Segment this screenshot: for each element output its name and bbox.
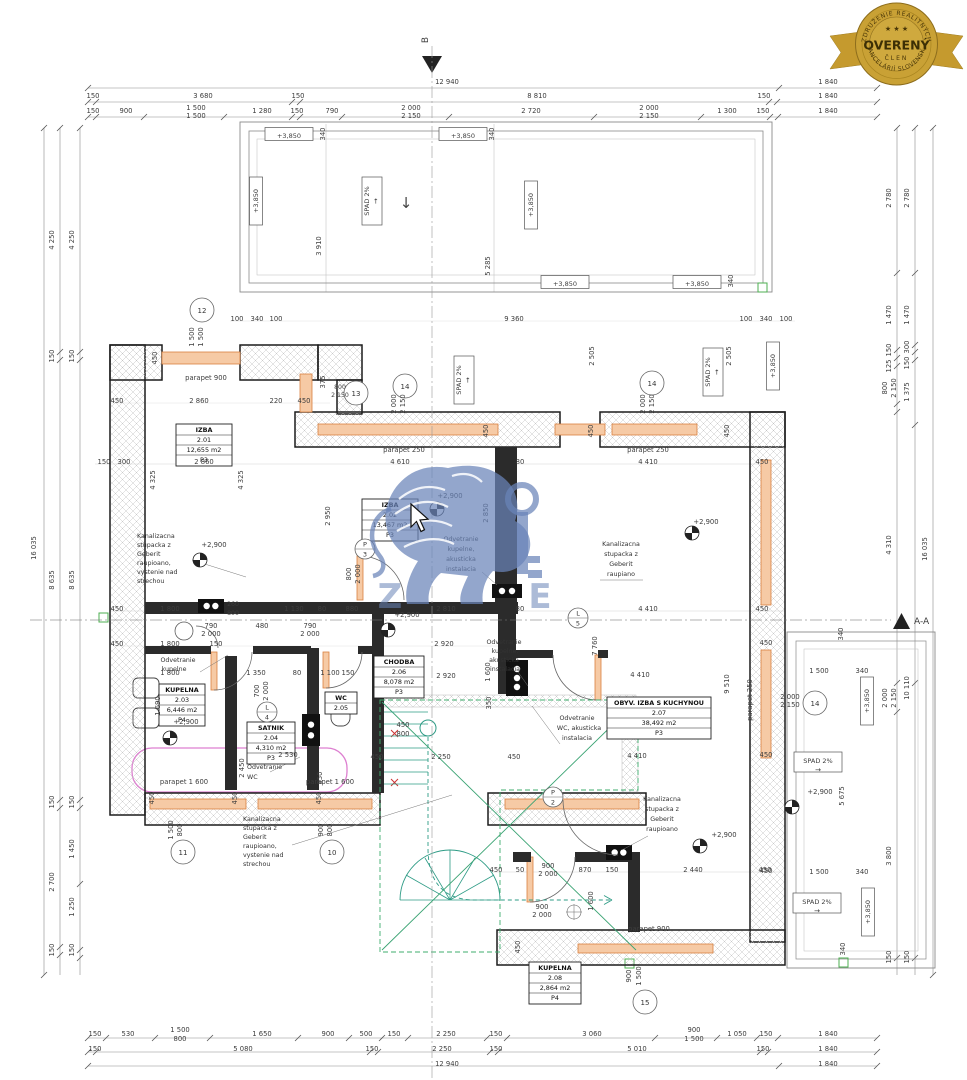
- dim-text: ↓: [400, 194, 413, 212]
- dim-text: 1 840: [818, 1030, 837, 1038]
- room-info: P3: [655, 729, 663, 737]
- dim-text: strechou: [137, 578, 164, 585]
- dim-text: 450: [723, 425, 731, 438]
- window-lintel: [612, 424, 697, 435]
- dim-text: 1 500: [167, 820, 175, 839]
- dim-text: 100: [270, 315, 283, 323]
- dim-text: 1 500: [684, 1035, 703, 1043]
- dim-text: 1 300: [717, 107, 736, 115]
- dim-text: 2 440: [683, 866, 702, 874]
- green-marker: [758, 283, 767, 292]
- dim-text: 4 410: [630, 671, 649, 679]
- watermark-letter: E: [528, 577, 551, 617]
- level-box-label: +3,850: [277, 132, 301, 140]
- dim-text: +2,900: [173, 718, 198, 726]
- dim-text: 80: [516, 458, 525, 466]
- dim-text: 300: [903, 341, 911, 354]
- dim-text: 150: [606, 866, 619, 874]
- dim-text: 4 250: [48, 230, 56, 249]
- dim-text: 2 860: [194, 458, 213, 466]
- dim-text: 1 500: [635, 966, 643, 985]
- dim-text: stupacka z: [604, 551, 638, 558]
- dim-text: 4 325: [237, 470, 245, 489]
- room-info: 2.07: [652, 709, 666, 717]
- dim-text: 2 000: [201, 630, 220, 638]
- window-lintel: [162, 352, 240, 364]
- plumbing-shaft: [492, 584, 522, 598]
- dim-text: 2 530: [278, 751, 297, 759]
- dim-text: 220: [270, 397, 283, 405]
- reference-circle-label: 14: [648, 380, 657, 388]
- dim-text: 150: [366, 1045, 379, 1053]
- partition-wall: [516, 650, 553, 658]
- dim-text: raupioano: [646, 826, 678, 833]
- dim-text: WC, akusticka: [557, 725, 601, 732]
- level-box-label: +3,850: [769, 354, 777, 378]
- badge-stars: ★ ★ ★: [885, 25, 908, 33]
- dim-text: 2 150: [401, 112, 420, 120]
- dim-text: 5 285: [484, 256, 492, 275]
- room-info: 2.08: [548, 974, 562, 982]
- room-info: 2.03: [175, 696, 189, 704]
- dim-text: 340: [856, 667, 869, 675]
- dim-text: 450: [111, 640, 124, 648]
- dim-text: 2 505: [588, 346, 596, 365]
- dim-text: raupioano,: [243, 843, 277, 850]
- dim-text: 2 780: [903, 188, 911, 207]
- dim-text: 150: [903, 951, 911, 964]
- partition-wall: [628, 852, 640, 932]
- room-name: CHODBA: [384, 658, 415, 666]
- dim-text: 3 910: [315, 236, 323, 255]
- dim-text: 450: [760, 751, 773, 759]
- plumbing-shaft: [198, 599, 224, 613]
- slope-arrow: →: [372, 198, 380, 204]
- dim-text: 150: [89, 1030, 102, 1038]
- partition-wall: [253, 646, 311, 654]
- dim-text: 450: [298, 397, 311, 405]
- line: [532, 706, 560, 744]
- shaft-pipe: [308, 721, 314, 727]
- dim-text: stupacka z: [137, 542, 171, 549]
- dim-text: Kanalizacna: [643, 796, 681, 803]
- dim-text: 2 000: [532, 911, 551, 919]
- dim-text: 700: [253, 685, 261, 698]
- room-info: 2,864 m2: [540, 984, 571, 992]
- dim-text: 450: [151, 352, 159, 365]
- dim-text: 12 940: [435, 78, 459, 86]
- dim-text: Geberit: [650, 816, 674, 823]
- dim-text: 800: [176, 824, 184, 837]
- dim-text: 9 510: [723, 674, 731, 693]
- dim-text: 2 000: [300, 630, 319, 638]
- dim-text: Odvetranie: [559, 715, 594, 722]
- dim-text: Odvetranie: [160, 657, 195, 664]
- dim-text: 2 810: [436, 605, 455, 613]
- room-info: 38,492 m2: [642, 719, 677, 727]
- dim-text: 1 500: [186, 112, 205, 120]
- dim-text: 8 635: [48, 570, 56, 589]
- dim-text: 375: [319, 376, 327, 389]
- dim-text: stupacka z: [243, 825, 277, 832]
- dim-text: 10 110: [903, 676, 911, 700]
- dim-text: 2 250: [432, 1045, 451, 1053]
- partition-wall: [358, 646, 372, 654]
- dim-text: 900: [317, 824, 325, 837]
- dim-text: 450: [231, 792, 239, 805]
- dim-text: 2 000: [390, 394, 398, 413]
- dim-text: Geberit: [137, 551, 161, 558]
- slope-arrow: →: [815, 766, 821, 774]
- dim-text: instalacia: [490, 666, 520, 673]
- dim-text: 1 690: [154, 696, 162, 715]
- stair-start: [420, 720, 436, 736]
- reference-circle-label: 14: [401, 383, 410, 391]
- roof-outline: [257, 139, 755, 275]
- dim-text: 340: [727, 275, 735, 288]
- dim-text: 4 250: [68, 230, 76, 249]
- dim-text: 2 150: [648, 394, 656, 413]
- dim-text: 790: [205, 622, 218, 630]
- dim-text: 800: [881, 382, 889, 395]
- shaft-pipe: [308, 732, 314, 738]
- dim-text: 800: [326, 824, 334, 837]
- dim-text: WC: [247, 774, 258, 781]
- room-info: 2.06: [392, 668, 406, 676]
- dim-text: 900: [542, 862, 555, 870]
- dim-text: 530: [122, 1030, 135, 1038]
- dim-text: 450: [759, 866, 772, 874]
- dim-text: Kanalizacna: [137, 533, 175, 540]
- dim-text: Geberit: [609, 561, 633, 568]
- floorplan-canvas: +3,850+3,850+3,850+3,850+3,850+3,850+3,8…: [0, 0, 967, 1080]
- dim-text: 4 410: [627, 752, 646, 760]
- dim-text: 340: [760, 315, 773, 323]
- badge-member: ČLEN: [885, 55, 909, 62]
- level-box-label: +3,850: [553, 280, 577, 288]
- dim-text: 2 950: [324, 506, 332, 525]
- dim-text: 480: [256, 622, 269, 630]
- dim-text: 150: [292, 92, 305, 100]
- dim-text: 4 325: [149, 470, 157, 489]
- plumbing-shaft: [606, 845, 632, 860]
- dim-text: 450: [490, 866, 503, 874]
- room-name: IZBA: [196, 426, 213, 434]
- dim-text: 450: [111, 397, 124, 405]
- room-info: 8,078 m2: [384, 678, 415, 686]
- slope-arrow: →: [713, 369, 721, 375]
- reference-circle-label: 5: [576, 620, 580, 628]
- dim-text: Odvetranie: [486, 639, 521, 646]
- dim-text: 340: [856, 868, 869, 876]
- dim-text: 2 250: [436, 1030, 455, 1038]
- dim-text: 2 860: [189, 397, 208, 405]
- partition-wall: [598, 650, 608, 658]
- dim-text: 4 410: [638, 605, 657, 613]
- dim-text: 5 080: [233, 1045, 252, 1053]
- dim-text: 500: [360, 1030, 373, 1038]
- dim-text: 450: [371, 753, 384, 761]
- stair-treads: [400, 850, 500, 900]
- dim-text: 450: [514, 941, 522, 954]
- dim-text: +2,900: [711, 831, 736, 839]
- dim-text: 2 450: [238, 758, 246, 777]
- dim-text: 2 150: [639, 112, 658, 120]
- dim-text: 1 800: [160, 640, 179, 648]
- dim-text: akusticka: [489, 657, 519, 664]
- window-lintel: [318, 424, 498, 435]
- dim-text: 340: [839, 943, 847, 956]
- dim-text: 450: [397, 721, 410, 729]
- dim-text: 80: [318, 605, 327, 613]
- dim-text: 100: [231, 315, 244, 323]
- dim-text: vystenie nad: [137, 569, 178, 576]
- dim-text: 1 500: [809, 667, 828, 675]
- dim-text: 150: [388, 1030, 401, 1038]
- level-box-label: SPAD 2%: [455, 365, 463, 394]
- dim-text: 340: [251, 315, 264, 323]
- dim-text: 100: [780, 315, 793, 323]
- dim-text: instalacia: [562, 735, 592, 742]
- dim-text: 800: [227, 610, 239, 617]
- window-lintel: [595, 655, 601, 700]
- dim-text: 1 840: [818, 92, 837, 100]
- dim-text: 450: [111, 605, 124, 613]
- dim-text: 340: [837, 628, 845, 641]
- dim-text: 150: [68, 350, 76, 363]
- dim-text: 1 650: [252, 1030, 271, 1038]
- reference-circle-label: 11: [179, 849, 188, 857]
- reference-circle-label: L: [265, 704, 269, 712]
- level-box-label: +3,850: [252, 189, 260, 213]
- dim-text: 5 010: [627, 1045, 646, 1053]
- dim-text: 80: [516, 605, 525, 613]
- dim-text: Geberit: [243, 834, 267, 841]
- dim-text: 900: [536, 903, 549, 911]
- dim-text: 4 410: [638, 458, 657, 466]
- dim-text: 4 310: [885, 535, 893, 554]
- dim-text: 340: [319, 128, 327, 141]
- dim-text: 150: [48, 944, 56, 957]
- dim-text: 150: [757, 1045, 770, 1053]
- dim-text: 150: [48, 350, 56, 363]
- dim-text: vystenie nad: [243, 852, 284, 859]
- dim-text: 50: [516, 866, 525, 874]
- dim-text: 1 375: [903, 382, 911, 401]
- dim-text: 900: [120, 107, 133, 115]
- room-info: P3: [267, 754, 275, 762]
- level-box-label: +3,850: [451, 132, 475, 140]
- room-info: 2.01: [197, 436, 211, 444]
- dim-text: 350: [485, 697, 493, 710]
- dim-text: 2 700: [48, 872, 56, 891]
- level-box-label: SPAD 2%: [803, 757, 832, 765]
- dim-text: 1 130: [284, 605, 303, 613]
- dim-text: parapet 900: [628, 925, 670, 933]
- dim-text: 800: [174, 1035, 187, 1043]
- reference-circle-label: 14: [811, 700, 820, 708]
- room-name: KUPELNA: [538, 964, 571, 972]
- shaft-pipe: [509, 588, 515, 594]
- reference-circle-label: P: [551, 789, 555, 797]
- dim-text: 16 035: [30, 536, 38, 560]
- dim-text: 2 250: [431, 753, 450, 761]
- dim-text: 150: [68, 944, 76, 957]
- dim-text: 450: [587, 425, 595, 438]
- dim-text: parapet 900: [185, 374, 227, 382]
- dim-text: 150: [98, 458, 111, 466]
- dim-text: raupiano: [607, 571, 635, 578]
- dim-text: 3 680: [193, 92, 212, 100]
- dim-text: 2 000: [639, 104, 658, 112]
- dim-text: +2,900: [201, 541, 226, 549]
- room-info: 2.04: [264, 734, 278, 742]
- room-info: P4: [551, 994, 559, 1002]
- dim-text: 450: [315, 792, 323, 805]
- room-info: P3: [395, 688, 403, 696]
- dim-text: 1 500: [170, 1026, 189, 1034]
- window-lintel: [761, 650, 771, 758]
- reference-circle-label: 12: [198, 307, 207, 315]
- dim-text: 2 000: [538, 870, 557, 878]
- dim-text: 2 150: [780, 701, 799, 709]
- dim-text: 2 000: [354, 564, 362, 583]
- window-lintel: [761, 460, 771, 605]
- reference-circle-label: L: [576, 610, 580, 618]
- room-info: 6,446 m2: [167, 706, 198, 714]
- dim-text: 150: [89, 1045, 102, 1053]
- dim-text: 12 940: [435, 1060, 459, 1068]
- shaft-pipe: [620, 849, 626, 855]
- dim-text: 1 280: [252, 107, 271, 115]
- level-box-label: +3,850: [864, 900, 872, 924]
- dim-text: Kanalizacna: [602, 541, 640, 548]
- room-name: WC: [335, 694, 347, 702]
- dim-text: 340: [488, 128, 496, 141]
- dim-text: 880: [346, 605, 359, 613]
- dim-text: 3 060: [582, 1030, 601, 1038]
- dim-text: 260: [227, 601, 239, 608]
- dim-text: 2 000: [780, 693, 799, 701]
- dim-text: 1 800: [160, 605, 179, 613]
- room-name: OBYV. IZBA S KUCHYNOU: [614, 699, 704, 707]
- dim-text: 1 470: [903, 305, 911, 324]
- level-box-label: SPAD 2%: [802, 898, 831, 906]
- wall: [318, 345, 362, 380]
- door-axis-cross: [566, 904, 582, 920]
- dim-text: 9 360: [504, 315, 523, 323]
- dim-text: 300: [118, 458, 131, 466]
- dim-text: 2 150: [399, 394, 407, 413]
- dim-text: 2 780: [885, 188, 893, 207]
- dim-text: 150: [903, 357, 911, 370]
- room-info: 12,655 m2: [187, 446, 222, 454]
- dim-text: 2 150: [890, 688, 898, 707]
- roof-outline: [240, 122, 772, 292]
- dim-text: stupacka z: [645, 806, 679, 813]
- level-box-label: +3,850: [685, 280, 709, 288]
- dim-text: 80: [293, 669, 302, 677]
- dim-text: 150: [210, 640, 223, 648]
- dim-text: 450: [760, 639, 773, 647]
- badge-title: OVERENÝ: [863, 38, 930, 53]
- window-lintel: [555, 424, 605, 435]
- dim-text: 1 050: [727, 1030, 746, 1038]
- dim-text: 800: [397, 730, 410, 738]
- dim-text: parapet 1 600: [160, 778, 208, 786]
- section-marker-aa: [893, 613, 910, 629]
- dim-text: 1 840: [818, 1045, 837, 1053]
- dim-text: 450: [148, 792, 156, 805]
- red-mark: [391, 779, 398, 786]
- shaft-pipe: [203, 603, 209, 609]
- dim-text: 800: [334, 384, 346, 391]
- reference-circle-label: 15: [641, 999, 650, 1007]
- slope-arrow: →: [814, 907, 820, 915]
- shaft-pipe: [514, 684, 520, 690]
- window-lintel: [300, 374, 312, 412]
- partition-wall: [513, 852, 531, 862]
- dim-text: kupelne: [162, 666, 187, 673]
- dim-text: 450: [756, 605, 769, 613]
- dim-text: 7 760: [591, 636, 599, 655]
- dim-text: 2 000: [881, 688, 889, 707]
- partition-wall: [225, 656, 237, 790]
- room-name: SATNIK: [258, 724, 285, 732]
- door-arc: [553, 655, 598, 700]
- dim-text: 3 800: [885, 846, 893, 865]
- dim-text: 870: [579, 866, 592, 874]
- dim-text: 150: [757, 107, 770, 115]
- dim-text: 2 920: [436, 672, 455, 680]
- dim-text: parapet 250: [383, 446, 425, 454]
- level-box-label: SPAD 2%: [704, 357, 712, 386]
- dim-text: 2 150: [890, 378, 898, 397]
- dim-text: 2 000: [262, 681, 270, 700]
- window-lintel: [527, 857, 533, 902]
- dim-text: 790: [326, 107, 339, 115]
- window-lintel: [578, 944, 713, 953]
- reference-circle-label: 3: [363, 551, 367, 559]
- watermark-letter: Z: [378, 577, 403, 617]
- reference-circle-label: 13: [352, 390, 361, 398]
- dim-text: 790: [304, 622, 317, 630]
- dim-text: 150: [885, 344, 893, 357]
- dim-text: 800: [345, 568, 353, 581]
- dim-text: 16 035: [921, 537, 929, 561]
- dim-text: 1 100: [320, 669, 339, 677]
- dim-text: 150: [291, 107, 304, 115]
- dim-text: A-A: [914, 617, 930, 627]
- dim-text: 1 500: [809, 868, 828, 876]
- dim-text: 1 600: [587, 891, 595, 910]
- dim-text: 450: [508, 753, 521, 761]
- dim-text: parapet 250: [746, 679, 754, 721]
- window-lintel: [211, 652, 217, 690]
- dim-text: +2,900: [693, 518, 718, 526]
- floorplan-drawing: +3,850+3,850+3,850+3,850+3,850+3,850+3,8…: [0, 0, 967, 1080]
- dim-text: 1 250: [68, 897, 76, 916]
- dim-text: 150: [87, 92, 100, 100]
- level-box-label: +3,850: [863, 689, 871, 713]
- line: [622, 836, 648, 850]
- dim-text: 900: [625, 970, 633, 983]
- shaft-pipe: [212, 603, 218, 609]
- dim-text: 2 000: [401, 104, 420, 112]
- room-name: KUPELNA: [165, 686, 198, 694]
- dim-text: 150: [87, 107, 100, 115]
- dim-text: 150: [68, 796, 76, 809]
